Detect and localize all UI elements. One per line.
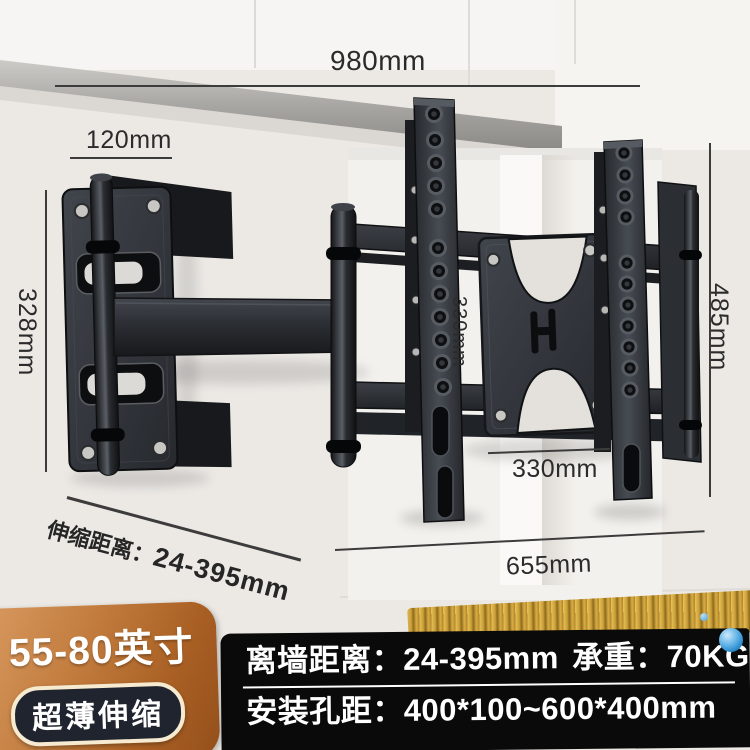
size-range-badge: 55-80英寸 超薄伸缩 bbox=[0, 601, 221, 750]
right-rail bbox=[594, 140, 652, 500]
hole-pitch-value: 400*100~600*400mm bbox=[404, 691, 717, 728]
spec-row-hole-pitch: 安装孔距：400*100~600*400mm bbox=[246, 690, 750, 729]
dimension-label-330-horizontal: 330mm bbox=[512, 455, 598, 484]
dimension-label-655: 655mm bbox=[506, 550, 593, 582]
vesa-plate bbox=[479, 234, 612, 436]
spec-divider bbox=[243, 681, 735, 688]
hole-pitch-label: 安装孔距： bbox=[246, 694, 404, 730]
dimension-label-980: 980mm bbox=[330, 45, 426, 77]
feature-pill: 超薄伸缩 bbox=[10, 681, 186, 747]
load-label: 承重： bbox=[572, 640, 667, 675]
size-range-text: 55-80英寸 bbox=[8, 615, 218, 678]
dimension-label-120: 120mm bbox=[86, 126, 172, 155]
dimension-line-980 bbox=[55, 85, 640, 87]
wall-distance-label: 离墙距离： bbox=[246, 643, 404, 679]
dimension-label-328: 328mm bbox=[12, 288, 41, 376]
product-dimension-image: 980mm 120mm 328mm 485mm 330mm 330mm 655m… bbox=[0, 0, 750, 750]
dimension-line-328 bbox=[45, 190, 47, 472]
right-frame-column bbox=[658, 182, 702, 462]
extension-arm bbox=[114, 298, 346, 356]
dimension-label-485: 485mm bbox=[704, 283, 733, 371]
spec-row-distance-load: 离墙距离：24-395mm 承重：70KG bbox=[246, 639, 750, 678]
dimension-label-330-vertical: 330mm bbox=[447, 296, 470, 368]
spec-bar: 离墙距离：24-395mm 承重：70KG 安装孔距：400*100~600*4… bbox=[220, 628, 750, 750]
dimension-line-120 bbox=[70, 157, 172, 159]
hinge-rod bbox=[326, 203, 361, 467]
wall-distance-value: 24-395mm bbox=[403, 641, 559, 677]
blue-dot-decoration bbox=[700, 613, 708, 621]
blue-ball-decoration bbox=[719, 628, 743, 652]
